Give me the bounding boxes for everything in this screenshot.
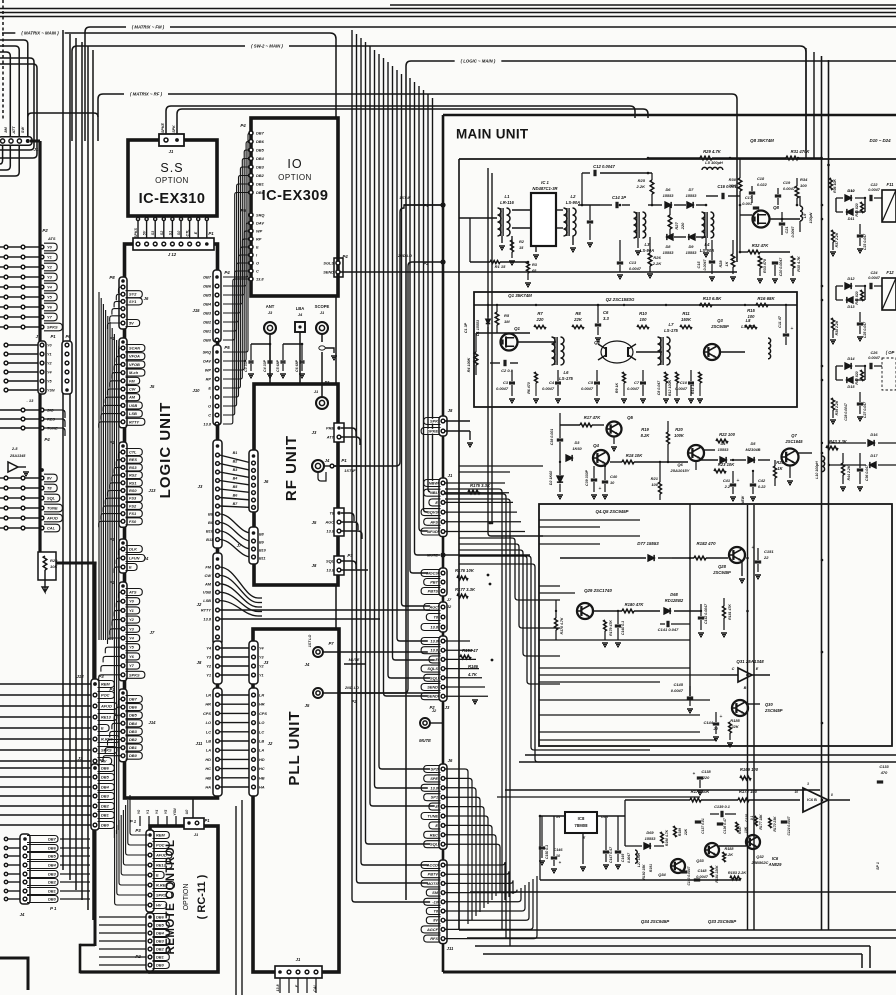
svg-text:IC6: IC6 xyxy=(772,856,779,861)
svg-text:J8: J8 xyxy=(197,660,202,665)
svg-text:Y7: Y7 xyxy=(47,315,53,320)
svg-text:S2: S2 xyxy=(160,231,164,235)
svg-text:R26: R26 xyxy=(653,255,661,260)
svg-text:POC: POC xyxy=(101,693,110,698)
svg-text:DB4: DB4 xyxy=(156,931,165,936)
svg-text:DAV: DAV xyxy=(203,359,211,364)
svg-text:L5 100µH: L5 100µH xyxy=(705,160,723,165)
svg-text:Q4.Q5 2SC945P: Q4.Q5 2SC945P xyxy=(596,509,629,514)
svg-text:RFS: RFS xyxy=(430,936,438,941)
svg-text:HC: HC xyxy=(205,766,211,771)
svg-text:C7: C7 xyxy=(634,380,640,385)
svg-text:FS1: FS1 xyxy=(129,511,136,516)
svg-text:B1: B1 xyxy=(233,451,238,455)
svg-text:R192 15K: R192 15K xyxy=(642,864,646,880)
svg-text:L1: L1 xyxy=(505,194,511,199)
svg-text:R.RES: R.RES xyxy=(156,883,168,888)
svg-text:B8: B8 xyxy=(208,512,214,517)
svg-text:J1: J1 xyxy=(320,310,325,315)
svg-text:TUNE: TUNE xyxy=(427,814,438,819)
svg-text:AM: AM xyxy=(204,581,212,586)
svg-text:470: 470 xyxy=(880,770,888,775)
svg-text:IC-EX309: IC-EX309 xyxy=(262,188,329,204)
svg-text:78M08: 78M08 xyxy=(574,823,588,828)
svg-text:SPK: SPK xyxy=(430,419,439,424)
svg-text:R31 470K: R31 470K xyxy=(791,149,811,154)
svg-text:J3: J3 xyxy=(445,705,450,710)
svg-text:15553: 15553 xyxy=(686,193,698,198)
svg-text:J3: J3 xyxy=(312,430,317,435)
svg-text:SP2: SP2 xyxy=(431,767,439,772)
svg-text:R38 2.2K: R38 2.2K xyxy=(835,320,839,335)
svg-text:Y3: Y3 xyxy=(129,626,135,631)
svg-text:0.0047: 0.0047 xyxy=(868,356,881,360)
svg-text:C19: C19 xyxy=(783,180,791,185)
svg-text:PRE: PRE xyxy=(326,426,334,431)
svg-text:DB4: DB4 xyxy=(203,302,212,307)
svg-text:0.0047: 0.0047 xyxy=(868,188,881,192)
svg-text:+: + xyxy=(693,771,696,776)
svg-text:2.2: 2.2 xyxy=(724,484,731,489)
svg-text:Q3: Q3 xyxy=(717,318,723,323)
svg-text:DB4: DB4 xyxy=(48,863,57,868)
svg-text:P4: P4 xyxy=(44,437,50,442)
svg-text:RD12EB2: RD12EB2 xyxy=(665,598,684,603)
svg-text:SPKS: SPKS xyxy=(156,893,167,898)
svg-text:DB5: DB5 xyxy=(129,713,138,718)
svg-text:+: + xyxy=(737,478,740,484)
svg-text:R185: R185 xyxy=(730,718,740,723)
svg-text:( MATRIX ~ RF ): ( MATRIX ~ RF ) xyxy=(130,92,163,97)
svg-text:2.2K: 2.2K xyxy=(636,184,647,189)
svg-text:R40 820: R40 820 xyxy=(855,203,859,216)
svg-text:B4: B4 xyxy=(233,477,238,481)
svg-text:8: 8 xyxy=(831,793,833,797)
svg-text:Q32: Q32 xyxy=(756,854,764,859)
svg-text:0.0047: 0.0047 xyxy=(629,266,642,271)
svg-text:J15: J15 xyxy=(193,308,201,313)
svg-text:R189: R189 xyxy=(678,828,682,836)
svg-text:DB0: DB0 xyxy=(129,753,138,758)
svg-text:P2: P2 xyxy=(42,228,48,233)
svg-text:S1: S1 xyxy=(168,231,172,235)
svg-text:R33 470: R33 470 xyxy=(763,258,767,273)
svg-text:J11: J11 xyxy=(447,946,454,951)
svg-text:SM: SM xyxy=(432,890,439,895)
svg-text:ATT: ATT xyxy=(326,435,335,440)
svg-text:R25: R25 xyxy=(638,178,646,183)
svg-text:+: + xyxy=(791,326,794,332)
svg-text:POC: POC xyxy=(156,843,165,848)
svg-text:B10: B10 xyxy=(259,549,267,553)
svg-text:C27 0.047: C27 0.047 xyxy=(863,401,867,418)
svg-text:LFUN: LFUN xyxy=(129,556,140,561)
svg-text:AFUD: AFUD xyxy=(46,516,58,521)
svg-text:C6: C6 xyxy=(603,310,609,315)
svg-text:Q34: Q34 xyxy=(658,872,666,877)
svg-text:J12: J12 xyxy=(76,674,84,679)
svg-text:IC6 B: IC6 B xyxy=(807,798,817,802)
svg-text:Y5: Y5 xyxy=(129,645,135,650)
svg-text:DB7: DB7 xyxy=(256,131,265,136)
svg-text:ATT: ATT xyxy=(12,126,16,135)
svg-text:P2: P2 xyxy=(135,954,141,959)
svg-text:13.8: 13.8 xyxy=(326,529,334,534)
svg-text:RF UNIT: RF UNIT xyxy=(283,435,300,501)
svg-text:DB1: DB1 xyxy=(48,889,56,894)
svg-text:LA: LA xyxy=(206,748,211,753)
svg-text:+: + xyxy=(559,860,562,865)
svg-text:P1: P1 xyxy=(204,818,210,823)
svg-text:REC: REC xyxy=(430,832,438,837)
svg-text:D4: D4 xyxy=(721,441,727,446)
svg-text:( OP: ( OP xyxy=(886,350,895,355)
svg-text:J 12: J 12 xyxy=(168,252,177,257)
svg-text:J4: J4 xyxy=(144,556,149,561)
svg-text:P1: P1 xyxy=(50,334,56,339)
svg-text:R176 10K: R176 10K xyxy=(455,568,475,573)
svg-text:MUTE: MUTE xyxy=(349,658,360,662)
svg-text:IC8: IC8 xyxy=(578,816,585,821)
svg-text:100µN: 100µN xyxy=(809,212,813,223)
svg-text:OPTION: OPTION xyxy=(155,176,189,185)
svg-text:C142 0.0047: C142 0.0047 xyxy=(704,603,708,624)
svg-text:YSN: YSN xyxy=(47,389,55,393)
svg-text:4.7K: 4.7K xyxy=(467,672,478,677)
svg-text:J6: J6 xyxy=(264,479,269,484)
svg-text:J1: J1 xyxy=(296,957,301,962)
svg-text:SY1: SY1 xyxy=(129,299,136,304)
svg-text:MUTE: MUTE xyxy=(427,553,438,558)
svg-text:C13: C13 xyxy=(629,260,637,265)
svg-text:AGCF: AGCF xyxy=(426,927,439,932)
svg-text:DB2: DB2 xyxy=(203,320,212,325)
svg-text:DB1: DB1 xyxy=(129,745,137,750)
svg-text:B9: B9 xyxy=(208,520,214,525)
svg-text:D9: D9 xyxy=(689,244,695,249)
svg-text:Y1: Y1 xyxy=(206,673,211,678)
svg-text:REM: REM xyxy=(101,682,110,687)
svg-text:F12: F12 xyxy=(886,270,894,275)
svg-text:DB6: DB6 xyxy=(129,705,138,710)
svg-text:0.0047: 0.0047 xyxy=(696,875,709,879)
svg-text:R4 100K: R4 100K xyxy=(467,357,471,372)
svg-text:SP 1: SP 1 xyxy=(876,862,880,870)
svg-text:HD: HD xyxy=(205,757,211,762)
svg-text:E: E xyxy=(101,726,104,731)
svg-text:P2: P2 xyxy=(109,440,115,445)
svg-text:D16: D16 xyxy=(870,432,878,437)
svg-text:13.8: 13.8 xyxy=(326,568,334,573)
svg-text:Q1: Q1 xyxy=(514,326,520,331)
svg-text:REM: REM xyxy=(156,833,165,838)
svg-text:Q2 2SC1583G: Q2 2SC1583G xyxy=(606,297,635,302)
svg-text:Y1: Y1 xyxy=(47,353,52,357)
svg-text:OPTION: OPTION xyxy=(183,884,190,911)
svg-text:Y4: Y4 xyxy=(47,285,53,290)
svg-text:J19: J19 xyxy=(34,147,42,152)
svg-text:RS1: RS1 xyxy=(129,480,137,485)
svg-text:ND487C1-3R: ND487C1-3R xyxy=(532,186,557,191)
svg-text:R30: R30 xyxy=(729,177,737,182)
svg-text:HR: HR xyxy=(205,702,211,707)
svg-text:J8: J8 xyxy=(312,563,317,568)
svg-text:DB6: DB6 xyxy=(101,766,110,771)
svg-text:D7: D7 xyxy=(689,187,695,192)
svg-text:J3: J3 xyxy=(268,310,273,315)
svg-text:R10: R10 xyxy=(639,311,647,316)
svg-text:C41: C41 xyxy=(723,478,730,483)
svg-text:B: B xyxy=(744,686,747,690)
svg-text:C150 0.1: C150 0.1 xyxy=(545,845,549,859)
svg-text:R182 470: R182 470 xyxy=(696,541,716,546)
svg-text:13.8: 13.8 xyxy=(203,422,211,427)
svg-text:RS0: RS0 xyxy=(129,488,137,493)
svg-text:SEND: SEND xyxy=(323,270,334,275)
svg-text:LS-90A: LS-90A xyxy=(640,248,654,253)
svg-text:1ST IF: 1ST IF xyxy=(399,196,411,200)
svg-text:AGC: AGC xyxy=(324,520,334,525)
svg-text:Y5: Y5 xyxy=(164,810,168,814)
svg-text:R188: R188 xyxy=(724,847,734,851)
svg-text:Y6: Y6 xyxy=(47,305,53,310)
svg-text:DAV: DAV xyxy=(256,221,264,226)
svg-text:LBA: LBA xyxy=(296,306,305,311)
svg-text:C6 68P: C6 68P xyxy=(295,359,299,372)
svg-text:SP1: SP1 xyxy=(431,795,438,800)
svg-text:J4: J4 xyxy=(298,312,303,317)
svg-text:DB6: DB6 xyxy=(48,846,57,851)
svg-text:SPE: SPE xyxy=(430,776,438,781)
svg-text:R7: R7 xyxy=(537,311,543,316)
svg-text:C14 1P: C14 1P xyxy=(612,195,626,200)
svg-text:NEW: NEW xyxy=(741,495,745,504)
svg-text:R179 47K: R179 47K xyxy=(609,620,613,636)
svg-text:AGC: AGC xyxy=(428,605,438,610)
svg-text:0.0047: 0.0047 xyxy=(542,386,555,391)
svg-text:Q5: Q5 xyxy=(627,415,633,420)
svg-text:C3: C3 xyxy=(503,380,509,385)
svg-text:L6: L6 xyxy=(564,370,570,375)
svg-text:HR: HR xyxy=(259,702,265,707)
svg-text:C22: C22 xyxy=(871,183,879,187)
svg-text:J1: J1 xyxy=(194,832,199,837)
svg-text:J2: J2 xyxy=(432,708,437,713)
svg-text:RS3: RS3 xyxy=(129,465,137,470)
svg-text:C133: C133 xyxy=(879,764,889,769)
svg-text:DB6: DB6 xyxy=(156,915,165,920)
svg-text:R6 470: R6 470 xyxy=(527,382,531,394)
svg-text:R8: R8 xyxy=(575,311,581,316)
svg-text:1M: 1M xyxy=(504,319,510,324)
svg-text:DB1: DB1 xyxy=(203,329,211,334)
svg-text:D17: D17 xyxy=(870,453,878,458)
svg-text:( RC-11 ): ( RC-11 ) xyxy=(196,874,208,919)
svg-text:LB: LB xyxy=(206,739,211,744)
svg-text:-10: -10 xyxy=(432,899,438,904)
svg-text:USB: USB xyxy=(129,403,137,408)
svg-text:Y1: Y1 xyxy=(146,810,150,814)
svg-text:Y4: Y4 xyxy=(129,636,135,641)
svg-text:Y3: Y3 xyxy=(47,275,53,280)
svg-text:R34: R34 xyxy=(800,177,808,182)
svg-text:D5: D5 xyxy=(751,441,757,446)
svg-text:22K: 22K xyxy=(573,317,583,322)
svg-text:J3: J3 xyxy=(264,660,269,665)
svg-text:13.8: 13.8 xyxy=(430,639,438,644)
svg-text:C148: C148 xyxy=(697,869,707,873)
svg-text:+: + xyxy=(599,486,602,492)
svg-text:( SW-2 ~ MAIN ): ( SW-2 ~ MAIN ) xyxy=(251,44,283,49)
svg-text:Y5: Y5 xyxy=(47,295,53,300)
svg-text:DB7: DB7 xyxy=(129,697,138,702)
svg-text:R9 1K: R9 1K xyxy=(615,383,619,394)
svg-text:13.8: 13.8 xyxy=(430,648,438,653)
svg-text:. 13: . 13 xyxy=(27,398,34,403)
svg-text:P7: P7 xyxy=(328,641,334,646)
svg-text:0.022: 0.022 xyxy=(757,182,768,187)
svg-text:R29 4.7K: R29 4.7K xyxy=(703,149,722,154)
svg-text:MOCS: MOCS xyxy=(426,571,438,576)
svg-text:C136 0.47: C136 0.47 xyxy=(723,817,727,834)
svg-text:OPTION: OPTION xyxy=(278,173,312,182)
svg-text:R37 2.2K: R37 2.2K xyxy=(835,232,839,247)
svg-text:VFOB: VFOB xyxy=(129,362,140,367)
svg-text:C36 0.047: C36 0.047 xyxy=(865,464,869,481)
svg-text:CW: CW xyxy=(129,387,136,392)
svg-text:P1: P1 xyxy=(109,336,115,341)
svg-text:DB3: DB3 xyxy=(48,872,57,877)
svg-text:CAL: CAL xyxy=(47,526,56,531)
svg-text:SEND: SEND xyxy=(427,694,438,699)
svg-text:DB0: DB0 xyxy=(256,190,265,195)
svg-text:Q1 35K74M: Q1 35K74M xyxy=(508,293,532,298)
svg-text:D6: D6 xyxy=(666,187,672,192)
svg-text:C145: C145 xyxy=(673,682,683,687)
svg-text:P5: P5 xyxy=(240,208,246,213)
svg-text:C140 0.1: C140 0.1 xyxy=(621,621,625,635)
svg-text:22K: 22K xyxy=(684,828,688,836)
svg-text:IO: IO xyxy=(287,157,302,171)
svg-text:0.0047: 0.0047 xyxy=(703,259,707,271)
svg-text:2ND LO: 2ND LO xyxy=(344,686,359,690)
svg-text:22: 22 xyxy=(763,555,769,560)
svg-text:SCOPE: SCOPE xyxy=(315,304,330,309)
svg-text:5V: 5V xyxy=(129,321,134,326)
svg-text:PBTS: PBTS xyxy=(428,589,439,594)
svg-text:100K: 100K xyxy=(674,433,685,438)
svg-text:SPKS: SPKS xyxy=(134,228,138,238)
svg-text:0.0047: 0.0047 xyxy=(627,386,640,391)
svg-text:1K: 1K xyxy=(725,261,729,266)
svg-text:SRQ: SRQ xyxy=(256,213,264,218)
svg-text:150K: 150K xyxy=(681,317,692,322)
svg-text:R169 100: R169 100 xyxy=(740,767,759,772)
svg-text:R44 2.2K: R44 2.2K xyxy=(847,465,851,480)
svg-text:Y4: Y4 xyxy=(47,371,52,375)
svg-text:LR: LR xyxy=(259,693,264,698)
svg-text:S3: S3 xyxy=(151,231,155,235)
svg-text:C: C xyxy=(256,269,259,274)
svg-text:13.8: 13.8 xyxy=(203,617,211,622)
svg-text:DB0: DB0 xyxy=(48,897,57,902)
svg-text:5V: 5V xyxy=(143,230,147,235)
svg-text:E: E xyxy=(435,823,438,828)
svg-text:B11: B11 xyxy=(206,537,213,542)
svg-text:DB2: DB2 xyxy=(156,947,165,952)
svg-text:R14 1K: R14 1K xyxy=(691,382,695,395)
svg-text:Y0: Y0 xyxy=(137,810,141,814)
svg-text:AFS: AFS xyxy=(429,519,438,524)
svg-text:USB: USB xyxy=(203,590,211,595)
svg-text:SEND: SEND xyxy=(427,685,438,690)
svg-text:C151: C151 xyxy=(764,549,774,554)
svg-text:J10: J10 xyxy=(193,388,201,393)
svg-text:S.S: S.S xyxy=(160,161,183,175)
svg-text:R2: R2 xyxy=(519,239,525,244)
svg-text:DB5: DB5 xyxy=(101,775,110,780)
svg-text:L3: L3 xyxy=(645,242,651,247)
svg-text:ACCD: ACCD xyxy=(426,863,438,868)
svg-text:R36 10K: R36 10K xyxy=(833,179,837,193)
svg-text:PLL UNIT: PLL UNIT xyxy=(286,710,303,785)
svg-text:P3: P3 xyxy=(347,553,353,558)
svg-text:SQL: SQL xyxy=(47,496,56,501)
svg-text:R177 18K: R177 18K xyxy=(759,814,763,830)
svg-text:FM: FM xyxy=(205,565,211,570)
svg-text:SGLS: SGLS xyxy=(323,261,334,266)
svg-text:SQL: SQL xyxy=(430,842,439,847)
svg-text:DB2: DB2 xyxy=(48,880,57,885)
svg-text:100: 100 xyxy=(640,317,648,322)
svg-text:TUNE: TUNE xyxy=(47,506,58,511)
svg-text:C8 0.047: C8 0.047 xyxy=(657,380,661,396)
svg-text:SQL: SQL xyxy=(430,675,439,680)
svg-text:0.0047: 0.0047 xyxy=(581,386,594,391)
svg-text:C11 47: C11 47 xyxy=(778,315,782,328)
svg-text:J5: J5 xyxy=(305,703,310,708)
svg-text:R191: R191 xyxy=(649,864,653,872)
svg-text:8.2K: 8.2K xyxy=(641,433,651,438)
svg-text:MOTS: MOTS xyxy=(427,881,439,886)
svg-text:Y4: Y4 xyxy=(259,647,264,651)
svg-text:CPS: CPS xyxy=(203,711,211,716)
svg-text:DB0: DB0 xyxy=(101,823,110,828)
svg-text:D68: D68 xyxy=(670,592,678,597)
svg-text:DB2: DB2 xyxy=(129,737,138,742)
svg-text:J7: J7 xyxy=(36,334,41,339)
svg-text:FM: FM xyxy=(129,378,135,383)
svg-text:Y2: Y2 xyxy=(129,617,135,622)
svg-text:O: O xyxy=(256,261,259,266)
svg-text:R28: R28 xyxy=(719,260,723,268)
svg-text:LC: LC xyxy=(259,729,264,734)
svg-text:P5: P5 xyxy=(224,345,230,350)
svg-text:C5: C5 xyxy=(588,380,594,385)
svg-text:P1: P1 xyxy=(109,687,115,692)
svg-text:D12: D12 xyxy=(847,276,855,281)
svg-text:RE13: RE13 xyxy=(101,715,112,720)
svg-text:D10 ~ D24: D10 ~ D24 xyxy=(869,138,891,143)
svg-text:SPKE: SPKE xyxy=(427,429,438,434)
svg-text:Q31 25A1348: Q31 25A1348 xyxy=(736,659,764,664)
svg-text:IC-EX310: IC-EX310 xyxy=(139,191,206,207)
svg-text:J1: J1 xyxy=(448,473,453,478)
svg-text:1K60: 1K60 xyxy=(572,446,582,451)
svg-text:R23 10K: R23 10K xyxy=(718,462,736,467)
svg-text:B11: B11 xyxy=(259,557,266,561)
svg-text:LSB: LSB xyxy=(129,411,137,416)
